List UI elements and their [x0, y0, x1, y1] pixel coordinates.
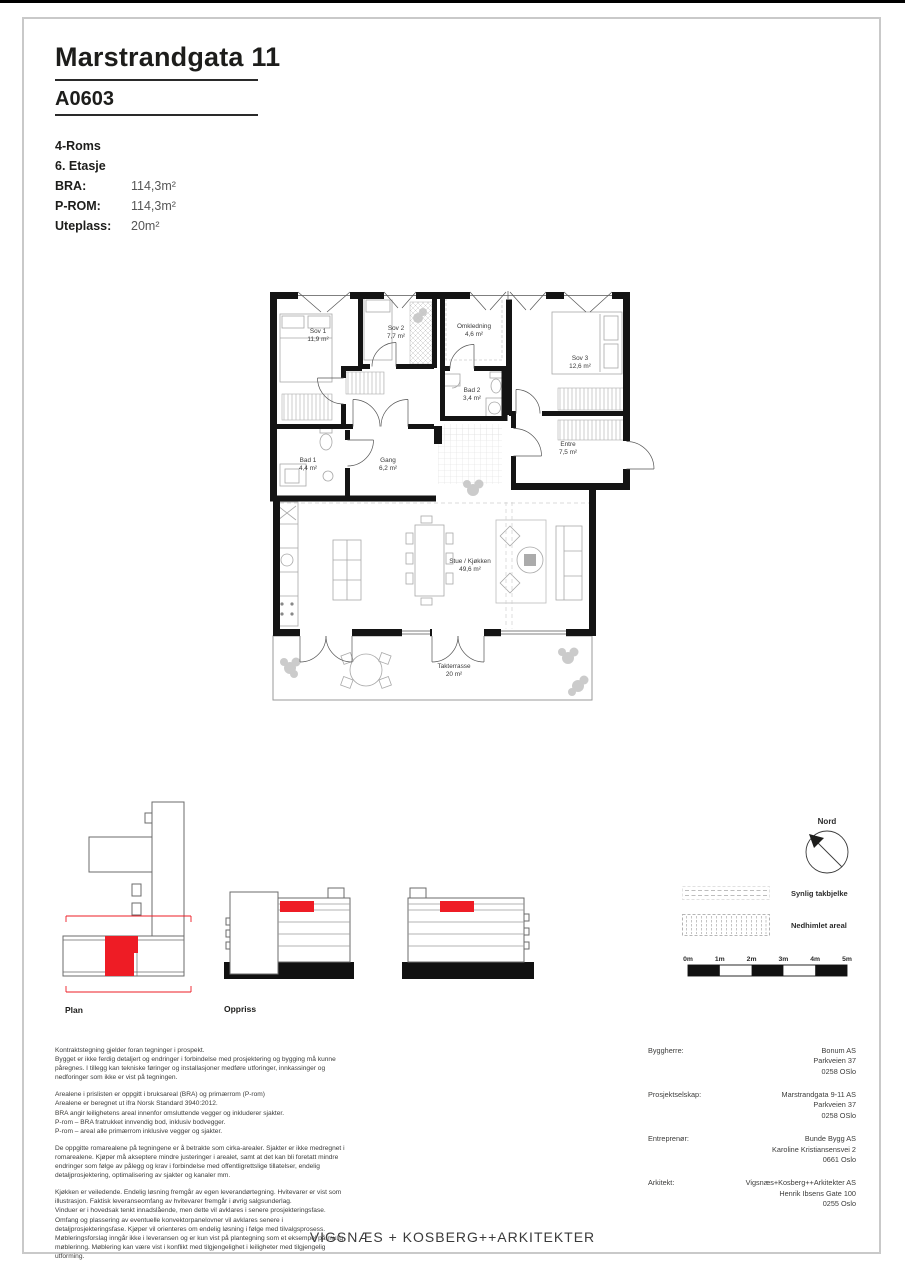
- contact-label: Byggherre:: [648, 1046, 726, 1077]
- room-label-sov2: Sov 2: [388, 325, 405, 332]
- fact-prom-value: 114,3m²: [131, 196, 176, 216]
- floor-plan: Sov 1 11,9 m² Sov 2 7,7 m² Omkledning 4,…: [258, 278, 658, 708]
- legend-swatch-takbjelke: [682, 886, 770, 900]
- scale-2: 2m: [747, 956, 757, 963]
- disclaimer-paragraph-2: Arealene i prislisten er oppgitt i bruks…: [55, 1090, 407, 1135]
- disclaimer-paragraph-3: De oppgitte romarealene på tegningene er…: [55, 1144, 407, 1180]
- contact-label: Arkitekt:: [648, 1178, 726, 1209]
- north-label: Nord: [818, 817, 837, 826]
- page-title: Marstrandgata 11: [55, 42, 280, 73]
- top-edge-strip: [0, 0, 905, 3]
- scale-bar: 0m 1m 2m 3m 4m 5m: [681, 953, 857, 983]
- fact-floor: 6. Etasje: [55, 156, 131, 176]
- scale-0: 0m: [683, 956, 693, 963]
- hatch-areas: [282, 302, 624, 484]
- fact-prom-label: P-ROM:: [55, 196, 131, 216]
- fact-bra-value: 114,3m²: [131, 176, 176, 196]
- contact-label: Prosjektselskap:: [648, 1090, 726, 1121]
- legend-swatch-nedhimlet: [682, 914, 770, 936]
- room-area-sov3: 12,6 m²: [569, 363, 591, 370]
- prospectus-page: Marstrandgata 11 A0603 4-Roms 6. Etasje …: [0, 0, 905, 1280]
- room-label-omkledning: Omkledning: [457, 323, 492, 330]
- room-label-sov3: Sov 3: [572, 355, 589, 362]
- room-label-takterrasse: Takterrasse: [437, 663, 470, 670]
- contact-label: Entreprenør:: [648, 1134, 726, 1165]
- north-compass-icon: Nord: [796, 812, 860, 892]
- room-area-omkledning: 4,6 m²: [465, 331, 483, 338]
- contact-block: Byggherre: Bonum AS Parkveien 37 0258 OS…: [648, 1046, 856, 1222]
- scale-3: 3m: [778, 956, 788, 963]
- fact-rooms: 4-Roms: [55, 136, 131, 156]
- scale-5: 5m: [842, 956, 852, 963]
- room-area-stue: 49,6 m²: [459, 566, 481, 573]
- room-area-sov1: 11,9 m²: [307, 336, 328, 343]
- unit-highlight-elev2: [440, 901, 474, 912]
- contact-value: Bunde Bygg AS Karoline Kristiansensvei 2…: [726, 1134, 856, 1165]
- room-label-bad1: Bad 1: [300, 457, 317, 464]
- contact-arkitekt: Arkitekt: Vigsnæs+Kosberg++Arkitekter AS…: [648, 1178, 856, 1209]
- scale-1: 1m: [715, 956, 725, 963]
- terrace-outline: [273, 636, 592, 700]
- room-area-entre: 7,5 m²: [559, 449, 577, 456]
- apartment-facts: 4-Roms 6. Etasje BRA:114,3m² P-ROM:114,3…: [55, 136, 176, 236]
- room-label-bad2: Bad 2: [464, 387, 481, 394]
- architect-footer: VIGSNÆS + KOSBERG++ARKITEKTER: [0, 1229, 905, 1245]
- fact-uteplass-label: Uteplass:: [55, 216, 131, 236]
- disclaimer-paragraph-1: Kontraktstegning gjelder foran tegninger…: [55, 1046, 407, 1082]
- room-label-entre: Entre: [560, 441, 576, 448]
- contact-value: Vigsnæs+Kosberg++Arkitekter AS Henrik Ib…: [726, 1178, 856, 1209]
- contact-byggherre: Byggherre: Bonum AS Parkveien 37 0258 OS…: [648, 1046, 856, 1077]
- unit-number: A0603: [55, 88, 114, 111]
- contact-prosjektselskap: Prosjektselskap: Marstrandgata 9-11 AS P…: [648, 1090, 856, 1121]
- unit-highlight-elev1: [280, 901, 314, 912]
- plan-key: Plan: [48, 788, 248, 1023]
- oppriss-label: Oppriss: [224, 1004, 256, 1014]
- contact-value: Marstrandgata 9-11 AS Parkveien 37 0258 …: [726, 1090, 856, 1121]
- room-label-gang: Gang: [380, 457, 396, 464]
- unit-highlight: [105, 936, 138, 976]
- room-area-bad2: 3,4 m²: [463, 395, 481, 402]
- room-area-takterrasse: 20 m²: [446, 671, 462, 678]
- disclaimer-paragraph-4: Kjøkken er veiledende. Endelig løsning f…: [55, 1188, 407, 1261]
- legend-label-takbjelke: Synlig takbjelke: [791, 889, 848, 898]
- unit-underline: [55, 114, 258, 116]
- legend-label-nedhimlet: Nedhimlet areal: [791, 921, 847, 930]
- fact-uteplass-value: 20m²: [131, 216, 159, 236]
- room-label-stue: Stue / Kjøkken: [449, 558, 491, 565]
- room-label-sov1: Sov 1: [310, 328, 327, 335]
- scale-4: 4m: [810, 956, 820, 963]
- plan-key-label: Plan: [65, 1005, 83, 1015]
- elevations: Oppriss: [222, 882, 542, 1017]
- contact-value: Bonum AS Parkveien 37 0258 OSlo: [726, 1046, 856, 1077]
- room-area-bad1: 4,4 m²: [299, 465, 317, 472]
- fact-bra-label: BRA:: [55, 176, 131, 196]
- room-area-gang: 6,2 m²: [379, 465, 397, 472]
- contact-entreprenor: Entreprenør: Bunde Bygg AS Karoline Kris…: [648, 1134, 856, 1165]
- title-underline: [55, 79, 258, 81]
- room-area-sov2: 7,7 m²: [387, 333, 405, 340]
